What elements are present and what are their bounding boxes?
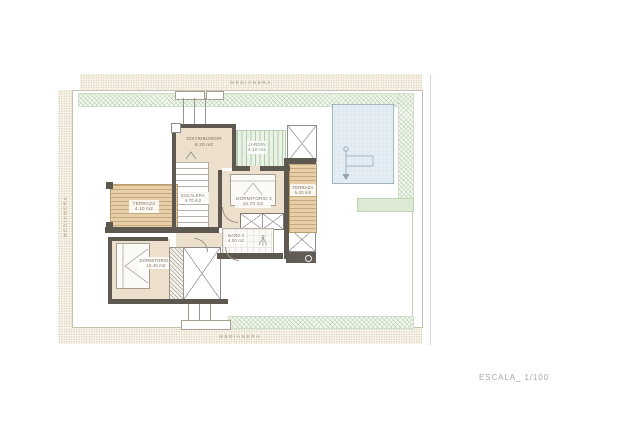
garden-strip-right [398,93,414,200]
corner-pilaster [106,182,113,189]
pillar-line [194,98,195,124]
medianera-band-bottom: MEDIANERA [58,328,422,344]
floor-plan-sheet: MEDIANERA MEDIANERA MEDIANERA DISTRIBUI [0,0,630,423]
footing-top-left [175,91,205,100]
medianera-label-bottom: MEDIANERA [219,334,261,339]
wall-segment [105,227,219,233]
wall-segment [108,237,112,304]
terrace-right: TERRAZA 5.20 m2 [289,163,317,233]
garden-lawn [357,198,414,212]
property-line-outer [430,75,431,345]
footing-bottom [181,320,231,330]
wall-segment [108,237,168,241]
stair-arrow-icon [184,150,198,160]
planter-bench [286,252,316,263]
wall-segment [172,124,176,232]
medianera-band-top: MEDIANERA [80,74,422,90]
skylight-xbox-top [287,125,317,162]
room-label-escalera: ESCALERA 4.70 m2 [177,192,209,204]
medianera-label-top: MEDIANERA [230,80,272,85]
pillar-line [188,304,189,320]
skylight-xbox-bottom [183,247,221,300]
pillar-line [183,98,184,124]
room-label-terraza-izq: TERRAZA 4.10 m2 [129,200,159,213]
pillar-line [199,304,200,320]
swimming-pool [332,104,394,184]
bench-circle-icon [305,255,312,262]
medianera-band-left: MEDIANERA [58,90,72,342]
room-label-jardin: JARDÍN 4.10 m2 [247,141,267,154]
room-label-dormitorio2: DORMITORIO 2 16.70 m2 [235,195,271,208]
room-label-bano2: BAÑO 2 4.00 m2 [227,232,246,244]
shower-icon [257,235,269,249]
scale-label: ESCALA_ 1/100 [479,373,549,382]
pillar-line [210,304,211,320]
footing-top-right [206,91,224,100]
pool-ladder-icon [333,105,393,183]
wall-segment [232,124,236,171]
terrace-left: TERRAZA 4.10 m2 [110,184,178,231]
room-label-distribuidor: DISTRIBUIDOR 8.20 m2 [176,136,232,148]
pillar-line [205,98,206,124]
room-label-terraza-der: TERRAZA 5.20 m2 [290,184,316,196]
hatched-wall-strip [169,247,184,300]
wall-notch [171,123,181,133]
wall-segment [232,166,290,171]
wardrobe-cell [262,214,284,229]
room-dormitorio3: DORMITORIO 3 10.40 m2 [112,239,170,301]
wall-segment [172,124,236,128]
wall-segment [218,170,222,228]
garden-strip-bottom [228,316,414,329]
door-opening [250,166,260,171]
wall-segment [284,164,289,259]
medianera-label-left: MEDIANERA [63,195,68,237]
room-jardin: JARDÍN 4.10 m2 [236,130,286,168]
wardrobe-cell [241,214,262,229]
